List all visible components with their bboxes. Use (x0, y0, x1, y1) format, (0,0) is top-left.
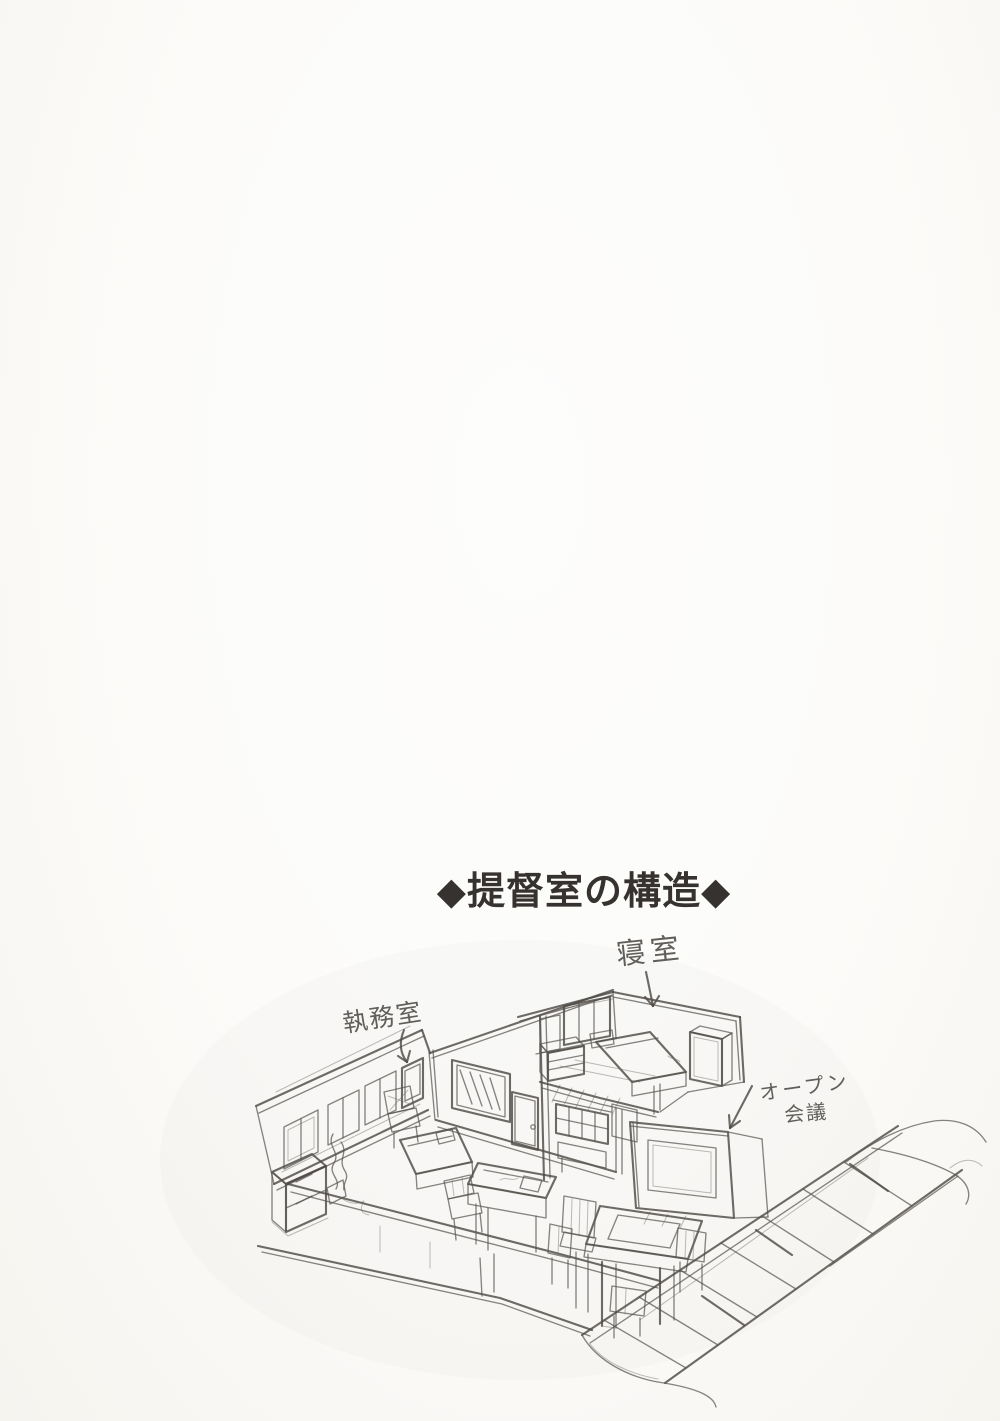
open-meeting-label-line2: 会議 (783, 1095, 829, 1128)
admiral-quarters-sketch (0, 0, 1000, 1421)
scanned-page: ◆提督室の構造◆ (0, 0, 1000, 1421)
bedroom-label: 寝室 (614, 925, 686, 974)
